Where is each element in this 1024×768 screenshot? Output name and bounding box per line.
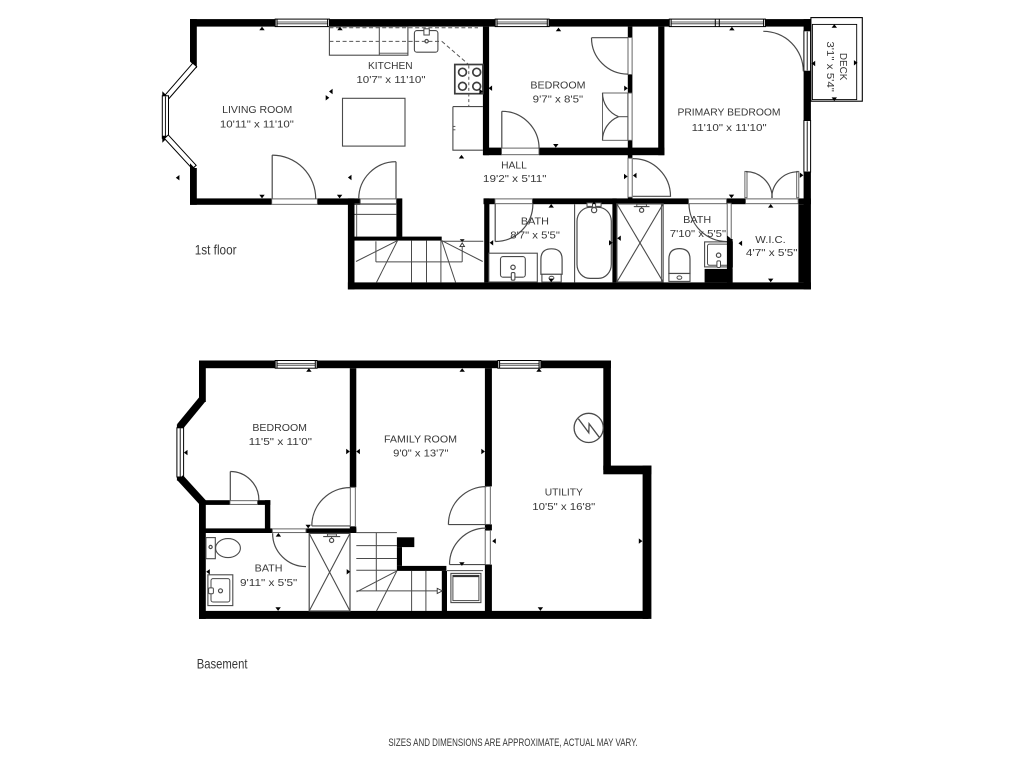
svg-text:7'10" x 5'5": 7'10" x 5'5" (670, 229, 727, 240)
svg-text:Basement: Basement (197, 655, 248, 671)
svg-text:4'7" x 5'5": 4'7" x 5'5" (746, 248, 798, 259)
svg-text:HALL: HALL (501, 160, 527, 171)
svg-text:10'11" x 11'10": 10'11" x 11'10" (220, 119, 294, 130)
svg-text:BATH: BATH (683, 215, 711, 226)
svg-text:3'1" x 5'4": 3'1" x 5'4" (824, 41, 835, 92)
svg-text:19'2" x 5'11": 19'2" x 5'11" (483, 174, 547, 185)
svg-text:BATH: BATH (255, 564, 283, 575)
svg-text:KITCHEN: KITCHEN (368, 61, 413, 72)
svg-text:BATH: BATH (521, 216, 549, 227)
svg-text:8'7" x 5'5": 8'7" x 5'5" (510, 230, 560, 241)
svg-text:9'0" x 13'7": 9'0" x 13'7" (393, 448, 449, 459)
svg-text:10'5" x 16'8": 10'5" x 16'8" (532, 502, 595, 513)
svg-text:PRIMARY BEDROOM: PRIMARY BEDROOM (677, 108, 780, 119)
svg-text:LIVING ROOM: LIVING ROOM (222, 105, 292, 116)
svg-text:9'7" x 8'5": 9'7" x 8'5" (533, 95, 584, 106)
svg-text:DECK: DECK (837, 53, 848, 81)
svg-text:SIZES AND DIMENSIONS ARE APPRO: SIZES AND DIMENSIONS ARE APPROXIMATE, AC… (388, 737, 637, 749)
svg-text:11'5" x 11'0": 11'5" x 11'0" (249, 437, 313, 448)
svg-text:10'7" x 11'10": 10'7" x 11'10" (356, 75, 425, 86)
svg-text:BEDROOM: BEDROOM (252, 423, 307, 434)
svg-text:UTILITY: UTILITY (545, 488, 583, 499)
svg-text:9'11" x 5'5": 9'11" x 5'5" (240, 578, 298, 589)
svg-text:BEDROOM: BEDROOM (530, 81, 585, 92)
svg-text:FAMILY ROOM: FAMILY ROOM (384, 434, 457, 445)
svg-text:W.I.C.: W.I.C. (755, 235, 786, 246)
svg-text:1st floor: 1st floor (195, 242, 237, 258)
svg-text:11'10" x 11'10": 11'10" x 11'10" (692, 123, 767, 134)
